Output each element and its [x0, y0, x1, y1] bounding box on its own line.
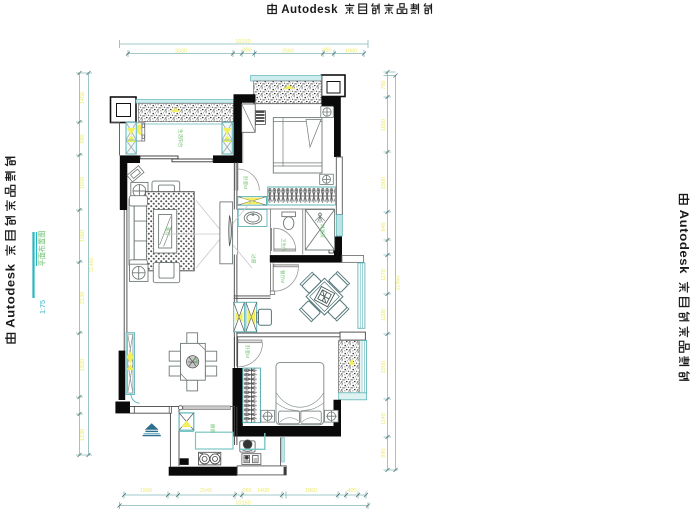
svg-text:760: 760: [381, 80, 387, 89]
svg-text:840: 840: [381, 222, 387, 231]
svg-text:10150: 10150: [235, 501, 250, 507]
svg-text:2040: 2040: [200, 488, 212, 494]
svg-text:990: 990: [80, 134, 86, 143]
svg-text:1080: 1080: [345, 49, 357, 55]
svg-text:过道: 过道: [250, 254, 257, 264]
svg-text:餐厅M: 餐厅M: [279, 270, 286, 283]
svg-text:卧室M: 卧室M: [244, 345, 251, 358]
svg-text:1400: 1400: [257, 488, 269, 494]
svg-text:客厅: 客厅: [164, 227, 171, 237]
svg-text:生活阳台: 生活阳台: [177, 129, 184, 148]
svg-text:1:75: 1:75: [38, 300, 47, 314]
svg-text:990: 990: [381, 448, 387, 457]
svg-text:1800: 1800: [381, 177, 387, 189]
svg-text:1560: 1560: [80, 230, 86, 242]
svg-text:1560: 1560: [140, 488, 152, 494]
svg-text:1950: 1950: [381, 361, 387, 373]
svg-text:11460: 11460: [89, 258, 95, 273]
svg-text:1170: 1170: [381, 269, 387, 281]
svg-text:卧室M: 卧室M: [242, 176, 249, 189]
svg-text:11460: 11460: [396, 276, 402, 291]
svg-text:卫生间: 卫生间: [280, 238, 287, 252]
svg-text:2560: 2560: [282, 49, 294, 55]
svg-text:400: 400: [347, 488, 356, 494]
svg-text:3300: 3300: [175, 49, 187, 55]
svg-text:2130: 2130: [80, 292, 86, 304]
svg-text:厨房: 厨房: [209, 424, 216, 434]
svg-text:1140: 1140: [381, 413, 387, 425]
svg-text:1650: 1650: [381, 119, 387, 131]
svg-text:1920: 1920: [80, 359, 86, 371]
svg-text:960: 960: [322, 48, 331, 54]
svg-text:1200: 1200: [381, 309, 387, 321]
svg-text:1230: 1230: [80, 429, 86, 441]
svg-text:1450: 1450: [80, 92, 86, 104]
svg-text:淋浴房: 淋浴房: [319, 224, 326, 238]
svg-text:900: 900: [242, 48, 251, 54]
svg-text:1860: 1860: [305, 488, 317, 494]
svg-text:260: 260: [242, 488, 251, 494]
svg-text:10150: 10150: [235, 39, 250, 45]
svg-text:1650: 1650: [80, 177, 86, 189]
svg-text:平面布置图: 平面布置图: [38, 231, 47, 267]
